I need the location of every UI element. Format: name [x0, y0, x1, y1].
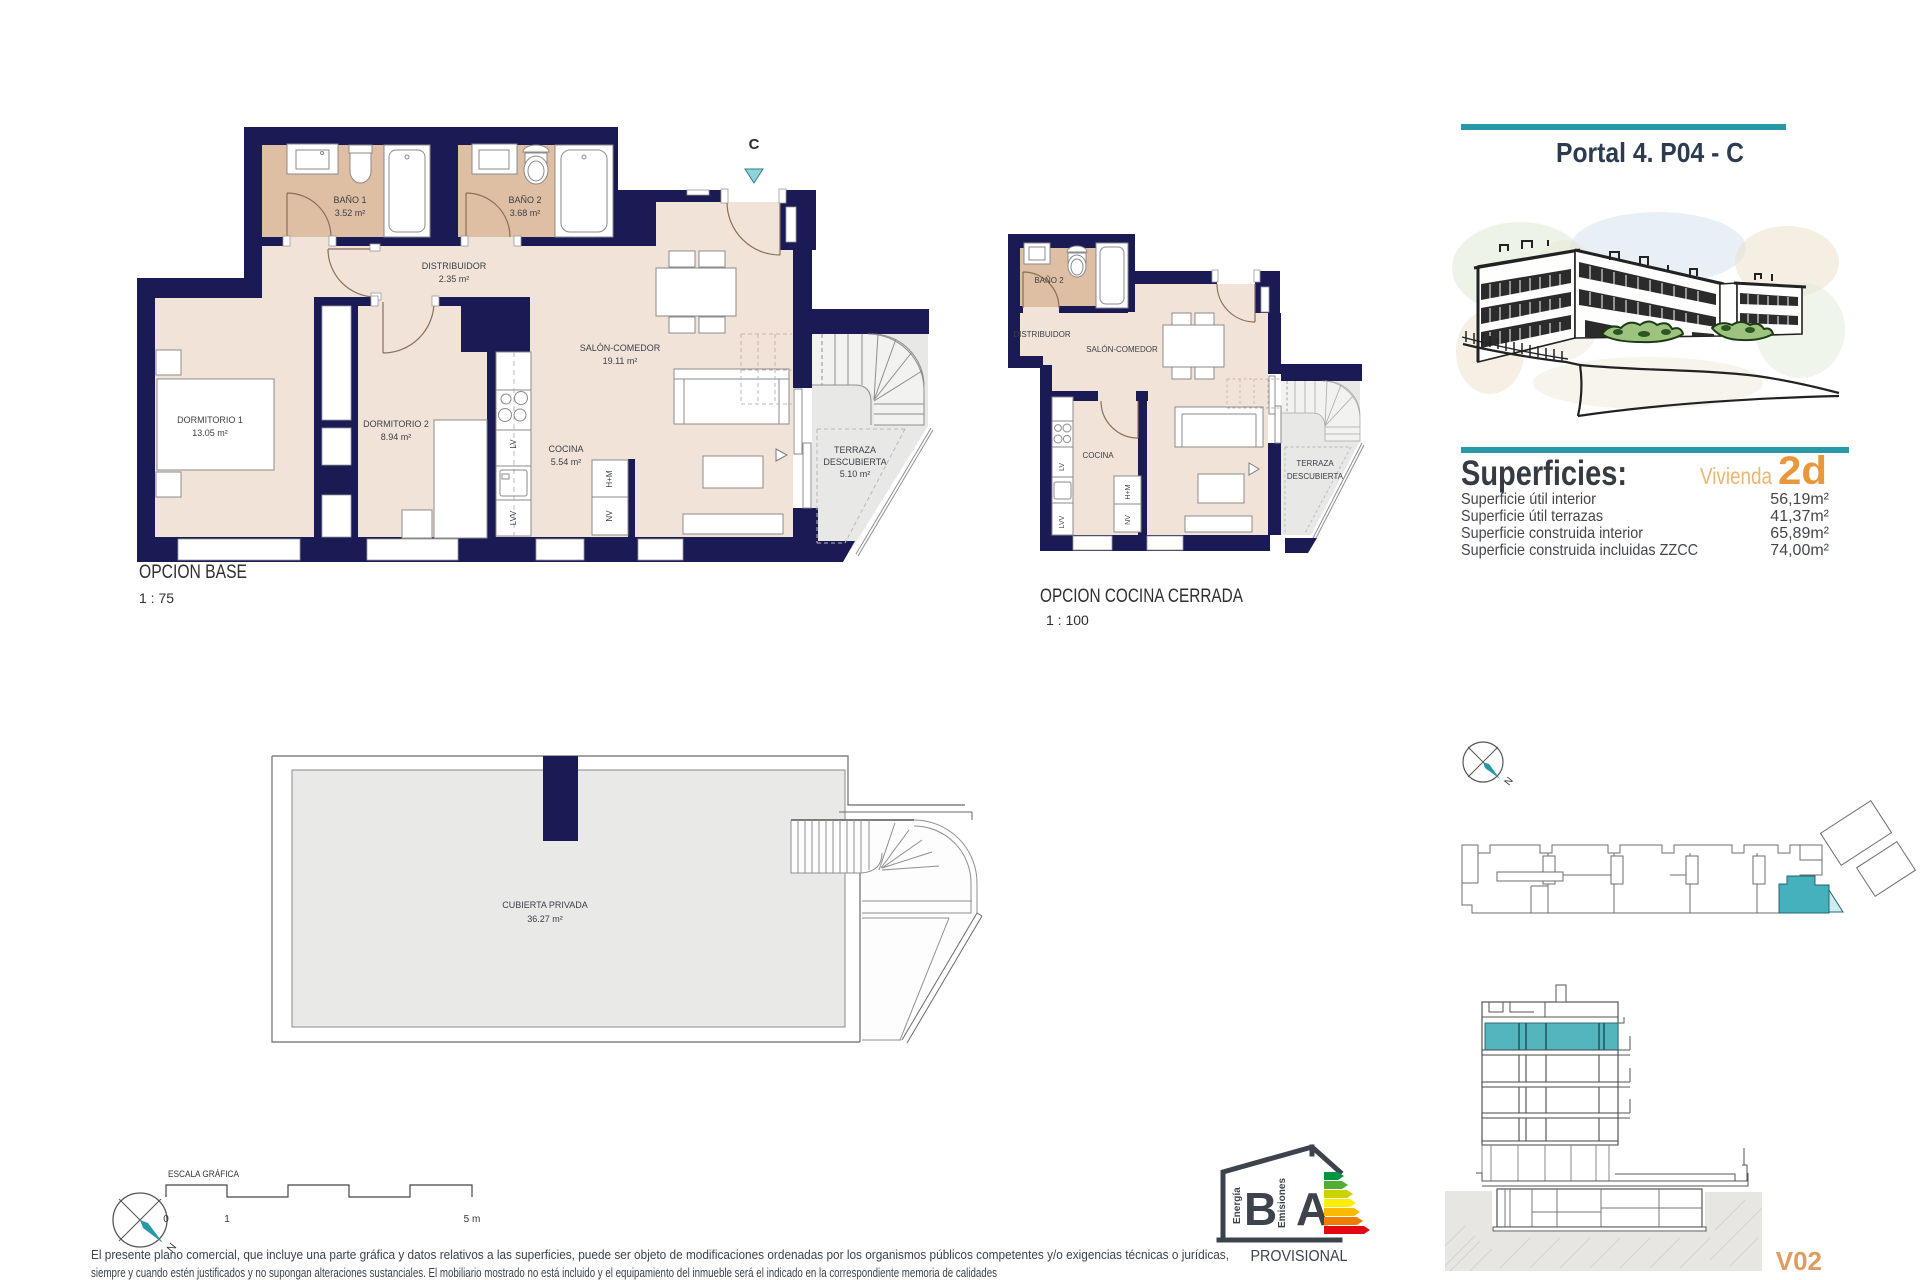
- svg-text:36.27 m²: 36.27 m²: [527, 914, 563, 924]
- svg-text:Superficie útil terrazas: Superficie útil terrazas: [1461, 508, 1603, 525]
- svg-text:0: 0: [163, 1214, 169, 1225]
- svg-text:LVV: LVV: [509, 510, 518, 525]
- svg-text:B: B: [1244, 1183, 1277, 1235]
- svg-text:LV: LV: [509, 439, 518, 449]
- svg-text:Portal 4. P04 - C: Portal 4. P04 - C: [1556, 137, 1744, 168]
- svg-text:5.54 m²: 5.54 m²: [551, 457, 582, 467]
- svg-text:Superficie construida interior: Superficie construida interior: [1461, 525, 1644, 542]
- svg-text:2d: 2d: [1778, 449, 1827, 493]
- svg-text:Energía: Energía: [1232, 1187, 1243, 1224]
- svg-text:DISTRIBUIDOR: DISTRIBUIDOR: [422, 261, 487, 271]
- svg-text:BAÑO 1: BAÑO 1: [333, 195, 366, 205]
- svg-text:ESCALA GRÁFICA: ESCALA GRÁFICA: [168, 1169, 240, 1180]
- svg-text:3.68 m²: 3.68 m²: [510, 208, 541, 218]
- svg-text:LVV: LVV: [1059, 515, 1066, 528]
- svg-text:siempre y cuando estén justifi: siempre y cuando estén justificados y no…: [91, 1265, 997, 1280]
- svg-text:C: C: [749, 136, 760, 153]
- svg-text:OPCION BASE: OPCION BASE: [139, 562, 247, 583]
- svg-text:BAÑO 2: BAÑO 2: [508, 195, 541, 205]
- svg-text:LV: LV: [1059, 463, 1066, 471]
- svg-text:DESCUBIERTA: DESCUBIERTA: [823, 457, 886, 467]
- svg-text:19.11 m²: 19.11 m²: [603, 356, 638, 366]
- svg-text:3.52 m²: 3.52 m²: [335, 208, 366, 218]
- svg-text:2.35 m²: 2.35 m²: [439, 274, 470, 284]
- svg-text:13.05 m²: 13.05 m²: [192, 428, 228, 438]
- svg-text:TERRAZA: TERRAZA: [1296, 459, 1334, 468]
- svg-text:Vivienda: Vivienda: [1700, 463, 1772, 489]
- svg-text:1 : 100: 1 : 100: [1046, 612, 1089, 628]
- svg-text:TERRAZA: TERRAZA: [834, 445, 876, 455]
- svg-text:1 : 75: 1 : 75: [139, 590, 174, 606]
- svg-text:8.94 m²: 8.94 m²: [381, 432, 412, 442]
- svg-text:DORMITORIO 1: DORMITORIO 1: [177, 415, 243, 425]
- svg-text:41,37m²: 41,37m²: [1770, 508, 1829, 525]
- svg-text:Superficie útil interior: Superficie útil interior: [1461, 491, 1597, 508]
- svg-text:NV: NV: [605, 510, 614, 522]
- svg-text:5 m: 5 m: [464, 1214, 481, 1225]
- svg-text:OPCION COCINA CERRADA: OPCION COCINA CERRADA: [1040, 586, 1243, 607]
- svg-text:SALÓN-COMEDOR: SALÓN-COMEDOR: [580, 343, 661, 353]
- svg-text:DISTRIBUIDOR: DISTRIBUIDOR: [1013, 330, 1071, 339]
- svg-text:Superficie construida incluida: Superficie construida incluidas ZZCC: [1461, 542, 1698, 559]
- svg-text:COCINA: COCINA: [548, 444, 583, 454]
- svg-text:Superficies:: Superficies:: [1461, 454, 1627, 493]
- svg-text:74,00m²: 74,00m²: [1770, 542, 1829, 559]
- svg-text:V02: V02: [1776, 1246, 1822, 1276]
- svg-text:BAÑO 2: BAÑO 2: [1034, 276, 1064, 285]
- svg-text:H+M: H+M: [1125, 484, 1132, 499]
- svg-text:El presente plano comercial, q: El presente plano comercial, que incluye…: [91, 1247, 1229, 1262]
- svg-text:DORMITORIO 2: DORMITORIO 2: [363, 419, 429, 429]
- svg-text:5.10 m²: 5.10 m²: [840, 469, 871, 479]
- svg-text:H+M: H+M: [605, 470, 614, 487]
- svg-text:COCINA: COCINA: [1082, 451, 1114, 460]
- svg-text:PROVISIONAL: PROVISIONAL: [1251, 1248, 1348, 1265]
- svg-text:SALÓN-COMEDOR: SALÓN-COMEDOR: [1086, 345, 1158, 354]
- svg-text:56,19m²: 56,19m²: [1770, 491, 1829, 508]
- svg-text:65,89m²: 65,89m²: [1770, 525, 1829, 542]
- svg-text:Emisiones: Emisiones: [1277, 1178, 1288, 1228]
- svg-text:1: 1: [224, 1214, 230, 1225]
- svg-text:CUBIERTA PRIVADA: CUBIERTA PRIVADA: [502, 900, 588, 910]
- svg-text:NV: NV: [1125, 515, 1132, 525]
- svg-text:DESCUBIERTA: DESCUBIERTA: [1287, 472, 1344, 481]
